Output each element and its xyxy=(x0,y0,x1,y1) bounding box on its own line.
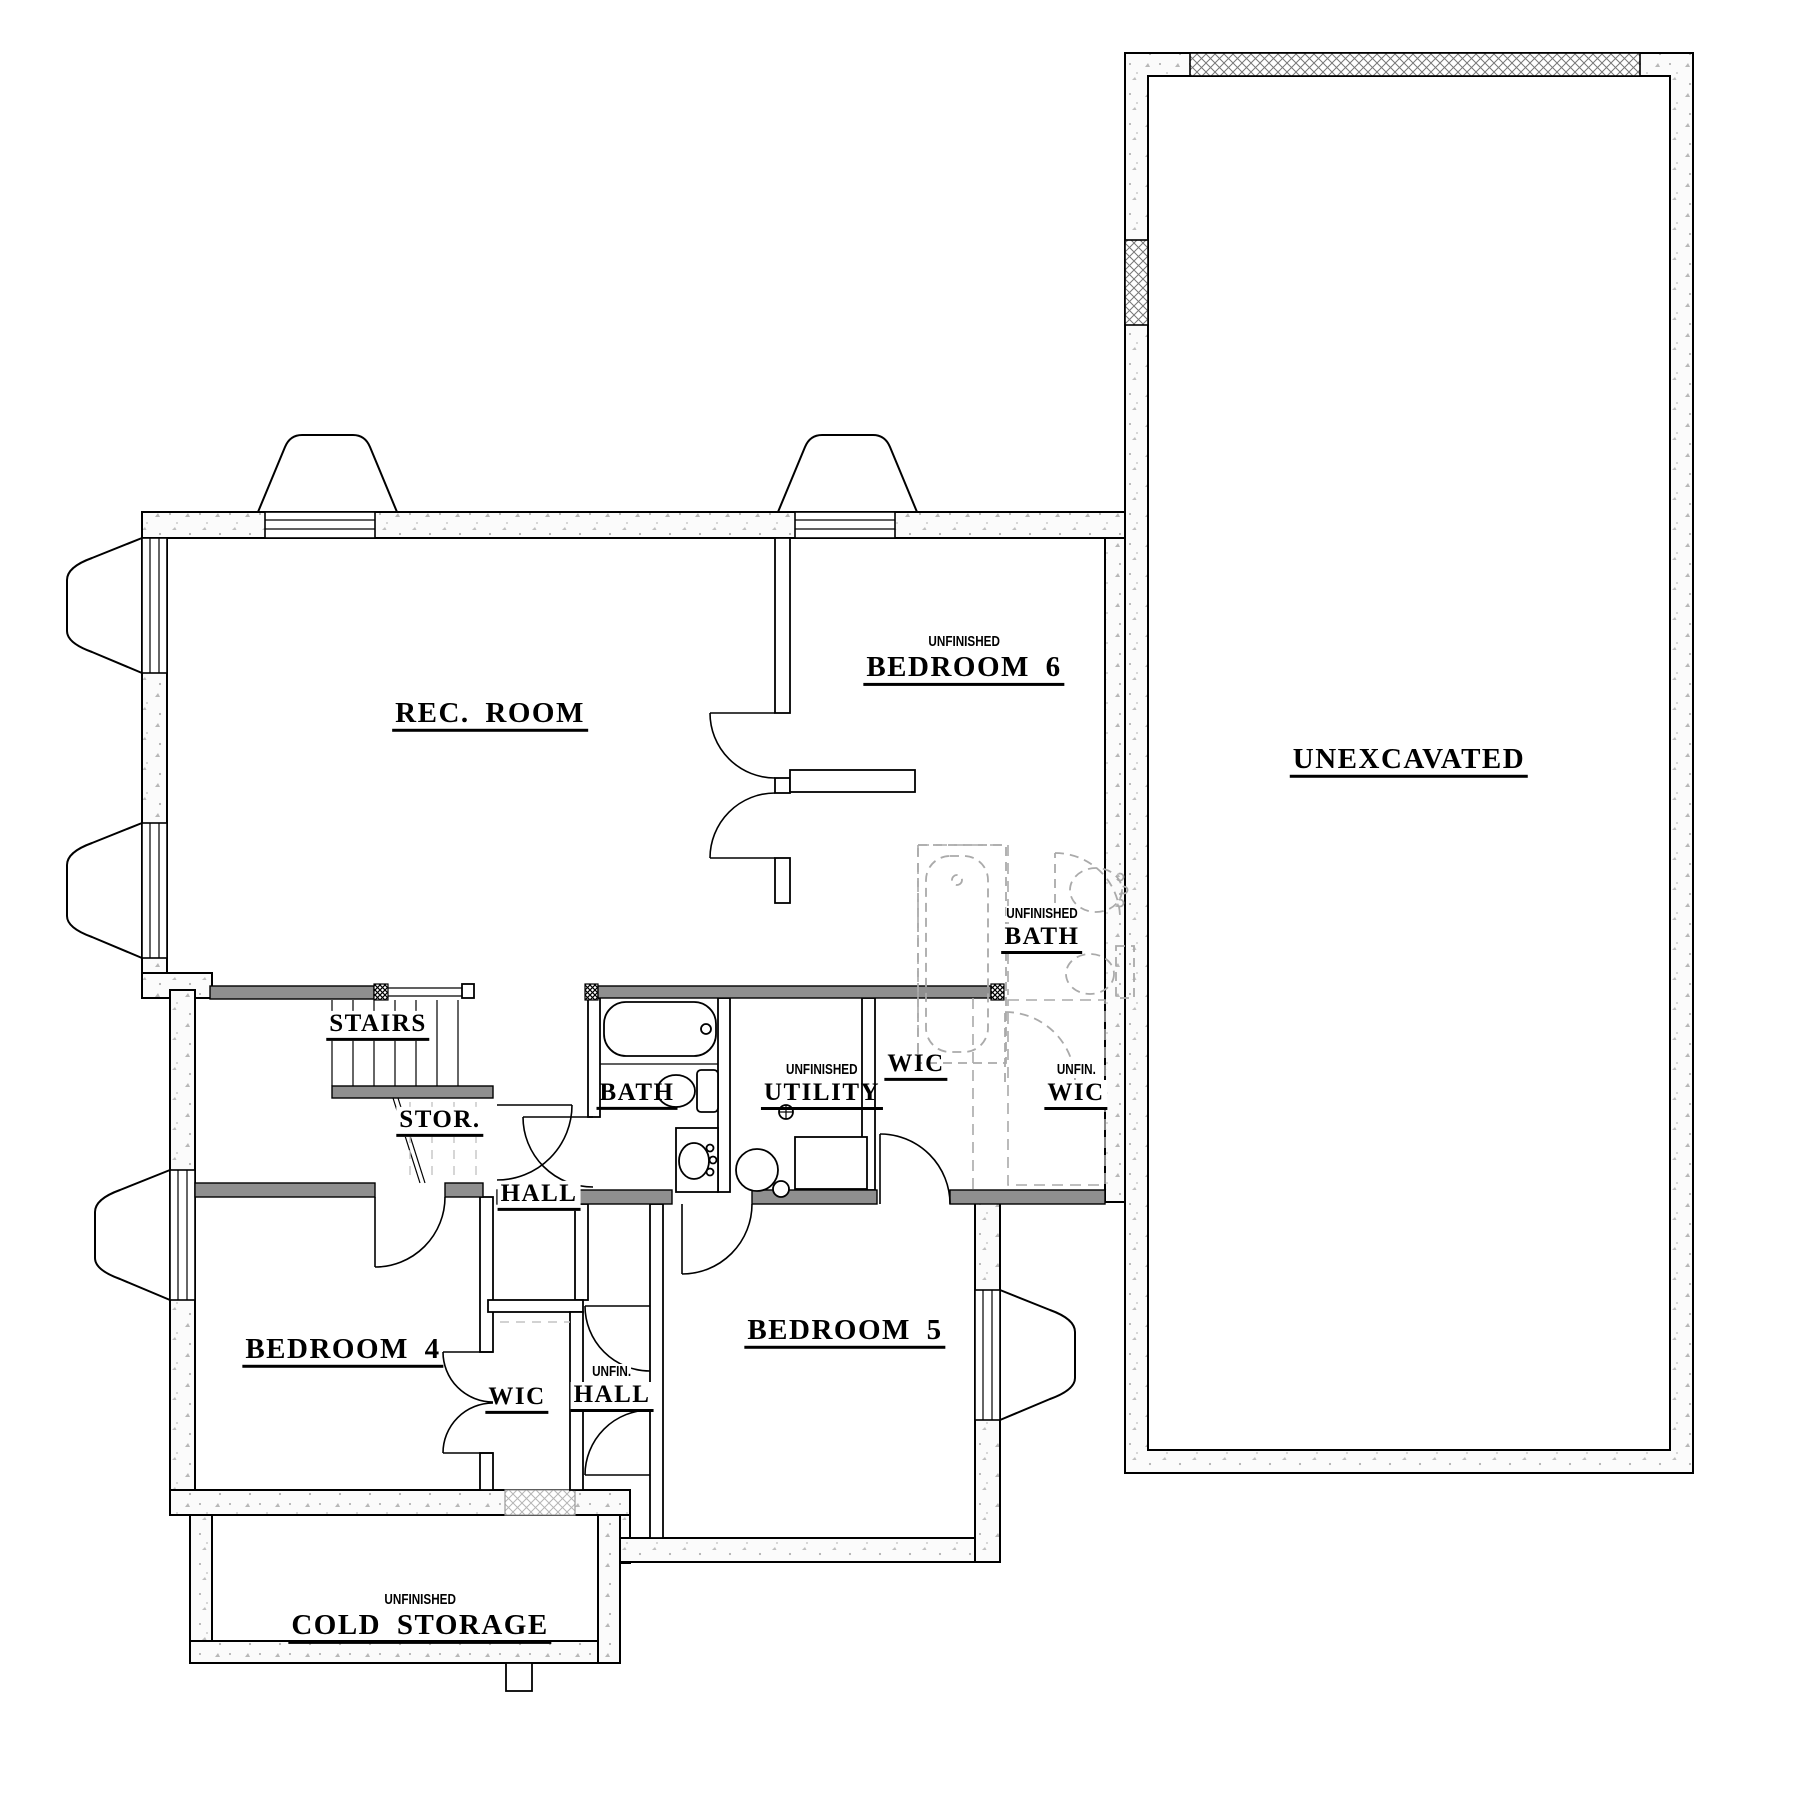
room-label-bedroom4: BEDROOM 4 xyxy=(242,1334,443,1368)
room-label-rec-room: REC. ROOM xyxy=(392,698,588,732)
floor-plan: REC. ROOM UNFINISHED BEDROOM 6 UNEXCAVAT… xyxy=(0,0,1800,1800)
window-wells xyxy=(67,435,1075,1420)
room-label-unexcavated: UNEXCAVATED xyxy=(1290,744,1528,778)
room-sublabel-utility: UNFINISHED xyxy=(786,1062,858,1078)
unfin-hall-south-door xyxy=(585,1410,650,1475)
room-label-bedroom5: BEDROOM 5 xyxy=(744,1315,945,1349)
unfin-hall-north-door xyxy=(585,1306,650,1371)
bedroom5-door xyxy=(682,1204,752,1274)
room-sublabel-unfinished-wic: UNFIN. xyxy=(1056,1062,1095,1078)
room-label-unfinished-wic: UNFIN. WIC xyxy=(1044,1062,1107,1110)
hall-bath-corridor-door xyxy=(710,793,775,858)
bathtub-icon xyxy=(604,1002,716,1056)
room-label-utility: UNFINISHED UTILITY xyxy=(761,1062,883,1110)
room-label-hall: HALL xyxy=(498,1181,581,1211)
hatched-wall-segment-left xyxy=(1125,240,1148,325)
room-label-bedroom6: UNFINISHED BEDROOM 6 xyxy=(863,634,1064,686)
floor-plan-drawing xyxy=(0,0,1800,1800)
room-label-unfinished-hall: UNFIN. HALL xyxy=(571,1364,654,1412)
wic-bedroom5-door xyxy=(880,1134,950,1204)
wall-post xyxy=(374,984,388,1000)
room-sublabel-unfinished-hall: UNFIN. xyxy=(592,1364,631,1380)
bedroom6-door xyxy=(710,713,775,778)
room-sublabel-unfinished-bath: UNFINISHED xyxy=(1006,906,1078,922)
bath-door xyxy=(523,1117,593,1187)
tub-drain-icon xyxy=(701,1024,711,1034)
toilet-tank-icon xyxy=(697,1070,718,1112)
wall-post xyxy=(585,984,598,1000)
bedroom4-door xyxy=(375,1197,445,1267)
room-label-cold-storage: UNFINISHED COLD STORAGE xyxy=(288,1592,551,1644)
room-label-wic-bedroom4: WIC xyxy=(485,1384,548,1414)
room-label-stairs: STAIRS xyxy=(326,1011,429,1041)
hatched-wall-segment-top xyxy=(1190,53,1640,76)
water-heater-icon xyxy=(736,1149,778,1191)
unfinished-tub-surround xyxy=(918,845,1006,1063)
room-label-storage: STOR. xyxy=(396,1107,483,1137)
wall-post xyxy=(991,984,1004,1000)
furnace-icon xyxy=(795,1137,867,1189)
room-sublabel-cold-storage: UNFINISHED xyxy=(384,1592,456,1608)
unfinished-bath-area xyxy=(918,845,1134,1190)
cold-storage-vent-stub xyxy=(506,1663,532,1691)
cold-storage-opening-hatch xyxy=(505,1490,575,1515)
room-label-wic-bedroom5: WIC xyxy=(884,1051,947,1081)
utility-fixtures xyxy=(736,1105,867,1197)
room-label-bath: BATH xyxy=(597,1080,678,1110)
room-sublabel-bedroom6: UNFINISHED xyxy=(928,634,1000,650)
sink-icon xyxy=(679,1143,709,1179)
room-label-unfinished-bath: UNFINISHED BATH xyxy=(996,906,1088,954)
stair-newel xyxy=(462,984,474,998)
